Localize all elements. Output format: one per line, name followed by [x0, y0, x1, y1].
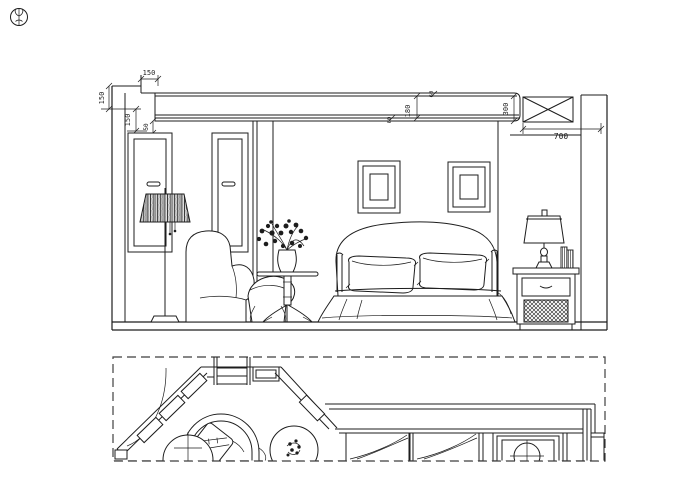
bed-skirt — [318, 296, 515, 322]
dim-text: 60 — [387, 117, 393, 124]
dim-left-upper: 150 — [98, 83, 141, 112]
bed — [318, 222, 515, 322]
nightstand — [513, 268, 579, 330]
table-lamp — [524, 210, 564, 268]
picture-frame-right — [448, 162, 490, 212]
plan-cushion-left — [346, 433, 409, 461]
dim-cabinet-width: 700 — [520, 123, 604, 141]
plan-wall-diagonal-right — [275, 367, 337, 429]
dim-text: 60 — [429, 91, 435, 98]
picture-frame-left — [358, 161, 400, 213]
plan-contents — [113, 357, 605, 485]
lamp-shade — [140, 194, 190, 222]
plan-cushion-right — [413, 433, 479, 461]
bedroom-elevation-and-plan-drawing: 150 150 150 50 180 — [0, 0, 691, 500]
elevation-view: 150 150 150 50 180 — [98, 69, 607, 330]
plant-monogram-icon — [11, 9, 28, 27]
books — [561, 247, 573, 268]
plan-divider-block — [483, 433, 493, 461]
vase — [278, 250, 297, 272]
plan-plant-table — [270, 426, 318, 474]
crossed-cabinet-box — [523, 97, 573, 122]
dim-text: 150 — [143, 69, 156, 77]
plan-wall-top-band — [201, 357, 281, 385]
plan-nightstand — [497, 436, 559, 469]
bed-pillow-right — [419, 253, 486, 290]
potted-plant — [257, 219, 308, 272]
dim-text: 700 — [554, 132, 569, 141]
dim-text: 50 — [143, 123, 150, 131]
dim-text: 300 — [502, 103, 510, 116]
lamp-base — [151, 316, 179, 322]
cad-drawing-canvas: 150 150 150 50 180 — [0, 0, 691, 500]
dim-text: 150 — [124, 114, 132, 127]
dim-text: 150 — [98, 92, 106, 105]
plan-view — [113, 357, 605, 485]
basket — [524, 300, 568, 322]
ceiling-beam — [155, 93, 520, 121]
plan-right-cabinet — [591, 433, 604, 461]
bed-pillow-left — [348, 256, 415, 293]
floor-lamp — [140, 188, 190, 322]
dim-text: 180 — [404, 105, 412, 118]
